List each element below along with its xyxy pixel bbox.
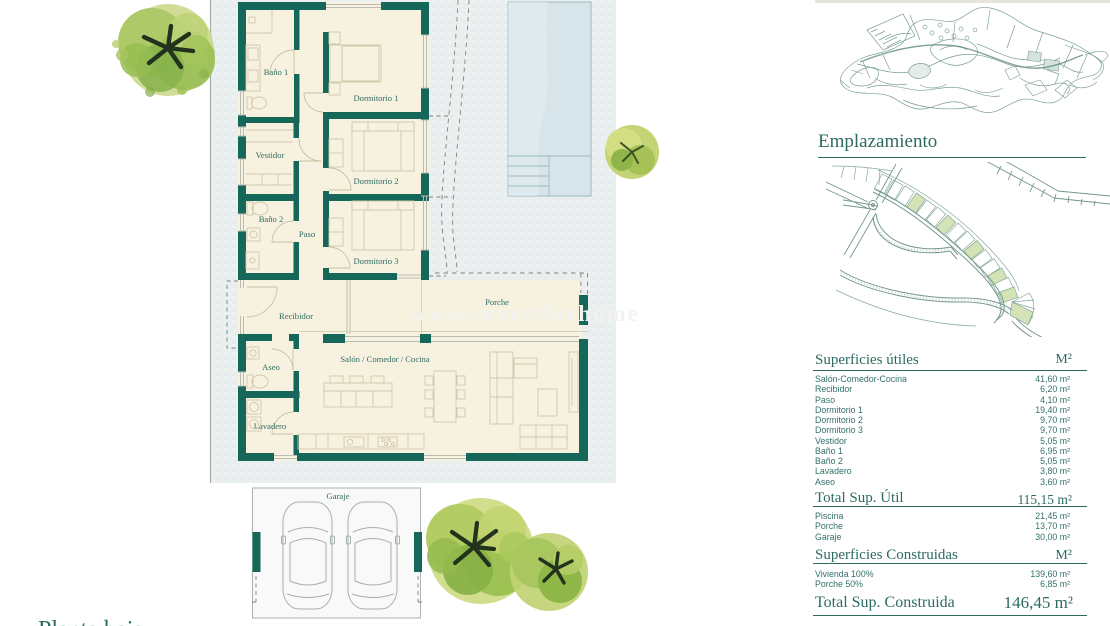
svg-text:Dormitorio 1: Dormitorio 1 — [353, 93, 398, 103]
svg-text:Dormitorio 3: Dormitorio 3 — [353, 256, 398, 266]
svg-text:Baño 1: Baño 1 — [264, 67, 289, 77]
svg-text:Paso: Paso — [299, 229, 315, 239]
svg-text:Garaje: Garaje — [327, 491, 350, 501]
svg-text:Baño 2: Baño 2 — [259, 214, 284, 224]
svg-text:Vestidor: Vestidor — [256, 150, 285, 160]
svg-text:Planta baja: Planta baja — [38, 617, 144, 626]
svg-text:Dormitorio 2: Dormitorio 2 — [353, 176, 398, 186]
svg-text:Aseo: Aseo — [262, 362, 280, 372]
svg-text:www.investforhome: www.investforhome — [411, 301, 640, 326]
svg-text:Salón / Comedor / Cocina: Salón / Comedor / Cocina — [340, 354, 429, 364]
svg-text:Recibidor: Recibidor — [279, 311, 313, 321]
